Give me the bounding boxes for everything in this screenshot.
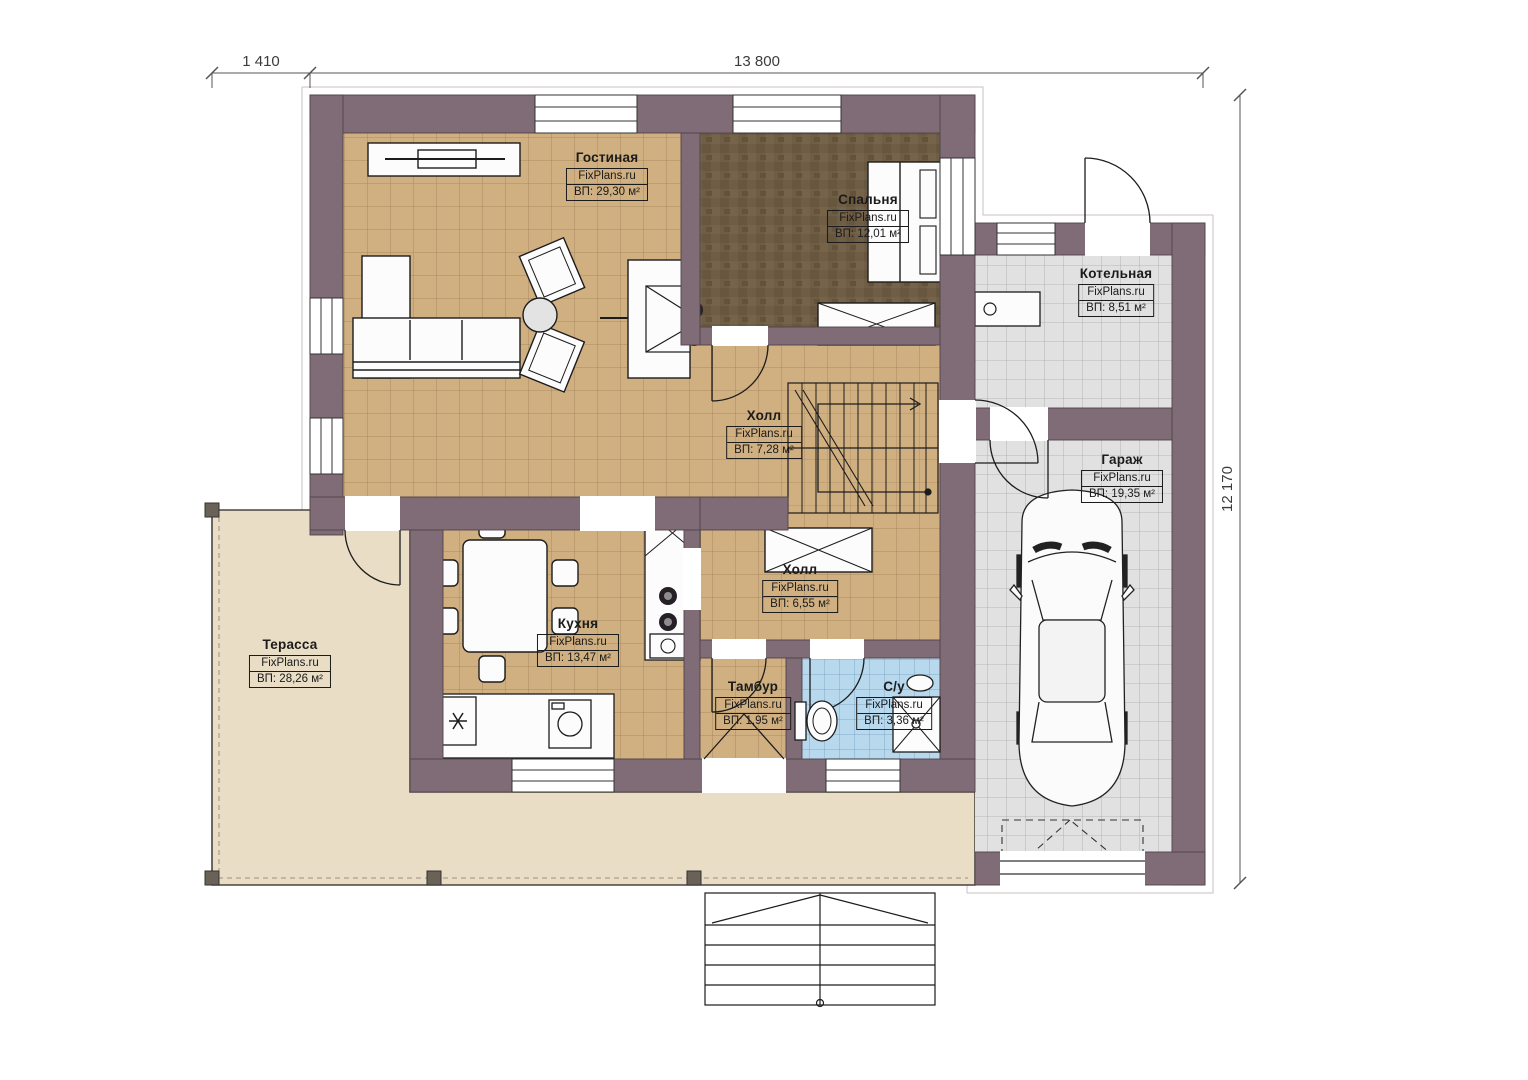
- floor-plan: 1 410 13 800 12 170 Гостиная FixPlans.ru…: [0, 0, 1528, 1080]
- room-name: Котельная: [1078, 266, 1154, 281]
- room-info-box: FixPlans.ru ВП: 7,28 м²: [726, 426, 802, 459]
- room-info-box: FixPlans.ru ВП: 12,01 м²: [827, 210, 909, 243]
- room-label-bathroom: С/у FixPlans.ru ВП: 3,36 м²: [856, 679, 932, 730]
- brand-watermark: FixPlans.ru: [727, 427, 801, 443]
- porch-steps: [705, 893, 935, 1007]
- door-boiler-exterior: [1085, 158, 1150, 223]
- room-label-hall-upper: Холл FixPlans.ru ВП: 7,28 м²: [726, 408, 802, 459]
- dim-house-depth: 12 170: [1219, 466, 1236, 512]
- kitchen-appliances: [438, 694, 614, 758]
- room-area: ВП: 12,01 м²: [828, 227, 908, 242]
- room-info-box: FixPlans.ru ВП: 1,95 м²: [715, 697, 791, 730]
- toilet: [795, 701, 837, 741]
- room-label-kitchen: Кухня FixPlans.ru ВП: 13,47 м²: [537, 616, 619, 667]
- dim-terrace-width: 1 410: [242, 53, 280, 70]
- room-label-hall-lower: Холл FixPlans.ru ВП: 6,55 м²: [762, 562, 838, 613]
- room-label-boiler: Котельная FixPlans.ru ВП: 8,51 м²: [1078, 266, 1154, 317]
- room-name: Гараж: [1081, 452, 1163, 467]
- window: [310, 298, 343, 354]
- room-label-vestibule: Тамбур FixPlans.ru ВП: 1,95 м²: [715, 679, 791, 730]
- car: [1010, 490, 1134, 806]
- window: [826, 759, 900, 792]
- coffee-table: [523, 298, 557, 332]
- dim-house-width: 13 800: [734, 53, 780, 70]
- room-label-garage: Гараж FixPlans.ru ВП: 19,35 м²: [1081, 452, 1163, 503]
- brand-watermark: FixPlans.ru: [857, 698, 931, 714]
- room-info-box: FixPlans.ru ВП: 6,55 м²: [762, 580, 838, 613]
- brand-watermark: FixPlans.ru: [1079, 285, 1153, 301]
- brand-watermark: FixPlans.ru: [1082, 471, 1162, 487]
- room-info-box: FixPlans.ru ВП: 28,26 м²: [249, 655, 331, 688]
- window: [512, 759, 614, 792]
- room-name: Гостиная: [566, 150, 648, 165]
- room-info-box: FixPlans.ru ВП: 13,47 м²: [537, 634, 619, 667]
- room-name: Кухня: [537, 616, 619, 631]
- room-info-box: FixPlans.ru ВП: 29,30 м²: [566, 168, 648, 201]
- room-info-box: FixPlans.ru ВП: 3,36 м²: [856, 697, 932, 730]
- room-area: ВП: 29,30 м²: [567, 185, 647, 200]
- floor-plan-drawing: 1 410 13 800 12 170: [0, 0, 1528, 1080]
- window: [535, 95, 637, 133]
- tv-console: [368, 143, 520, 176]
- room-area: ВП: 19,35 м²: [1082, 487, 1162, 502]
- room-label-bedroom: Спальня FixPlans.ru ВП: 12,01 м²: [827, 192, 909, 243]
- brand-watermark: FixPlans.ru: [250, 656, 330, 672]
- room-info-box: FixPlans.ru ВП: 8,51 м²: [1078, 284, 1154, 317]
- brand-watermark: FixPlans.ru: [828, 211, 908, 227]
- room-label-living: Гостиная FixPlans.ru ВП: 29,30 м²: [566, 150, 648, 201]
- brand-watermark: FixPlans.ru: [763, 581, 837, 597]
- room-area: ВП: 3,36 м²: [857, 714, 931, 729]
- brand-watermark: FixPlans.ru: [716, 698, 790, 714]
- window: [997, 223, 1055, 255]
- room-name: Холл: [726, 408, 802, 423]
- room-area: ВП: 7,28 м²: [727, 443, 801, 458]
- brand-watermark: FixPlans.ru: [538, 635, 618, 651]
- room-name: Терасса: [249, 637, 331, 652]
- room-name: С/у: [856, 679, 932, 694]
- room-info-box: FixPlans.ru ВП: 19,35 м²: [1081, 470, 1163, 503]
- window: [310, 418, 343, 474]
- room-label-terrace: Терасса FixPlans.ru ВП: 28,26 м²: [249, 637, 331, 688]
- room-name: Холл: [762, 562, 838, 577]
- room-area: ВП: 6,55 м²: [763, 597, 837, 612]
- brand-watermark: FixPlans.ru: [567, 169, 647, 185]
- room-name: Спальня: [827, 192, 909, 207]
- staircase: [788, 383, 938, 513]
- window: [733, 95, 841, 133]
- room-name: Тамбур: [715, 679, 791, 694]
- window: [940, 158, 975, 255]
- room-area: ВП: 8,51 м²: [1079, 301, 1153, 316]
- room-area: ВП: 13,47 м²: [538, 651, 618, 666]
- room-area: ВП: 28,26 м²: [250, 672, 330, 687]
- room-area: ВП: 1,95 м²: [716, 714, 790, 729]
